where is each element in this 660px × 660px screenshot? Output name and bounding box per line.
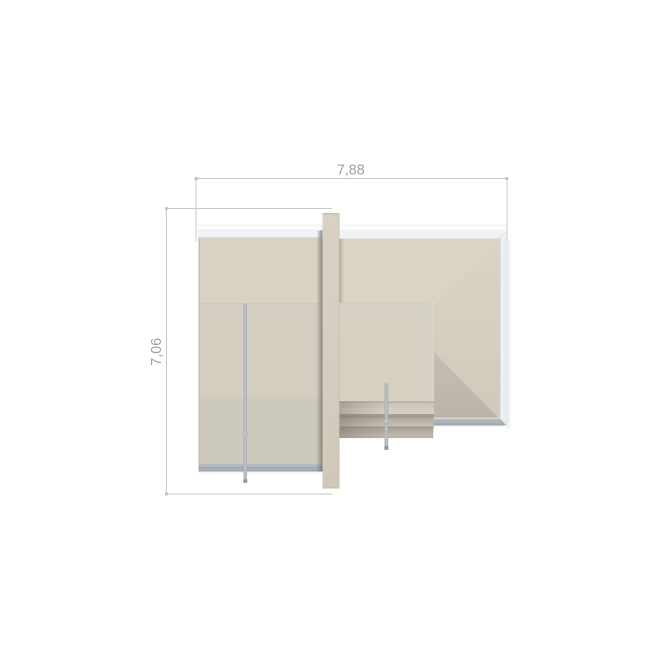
svg-text:7,06: 7,06	[149, 338, 165, 366]
svg-text:7,88: 7,88	[337, 162, 365, 178]
